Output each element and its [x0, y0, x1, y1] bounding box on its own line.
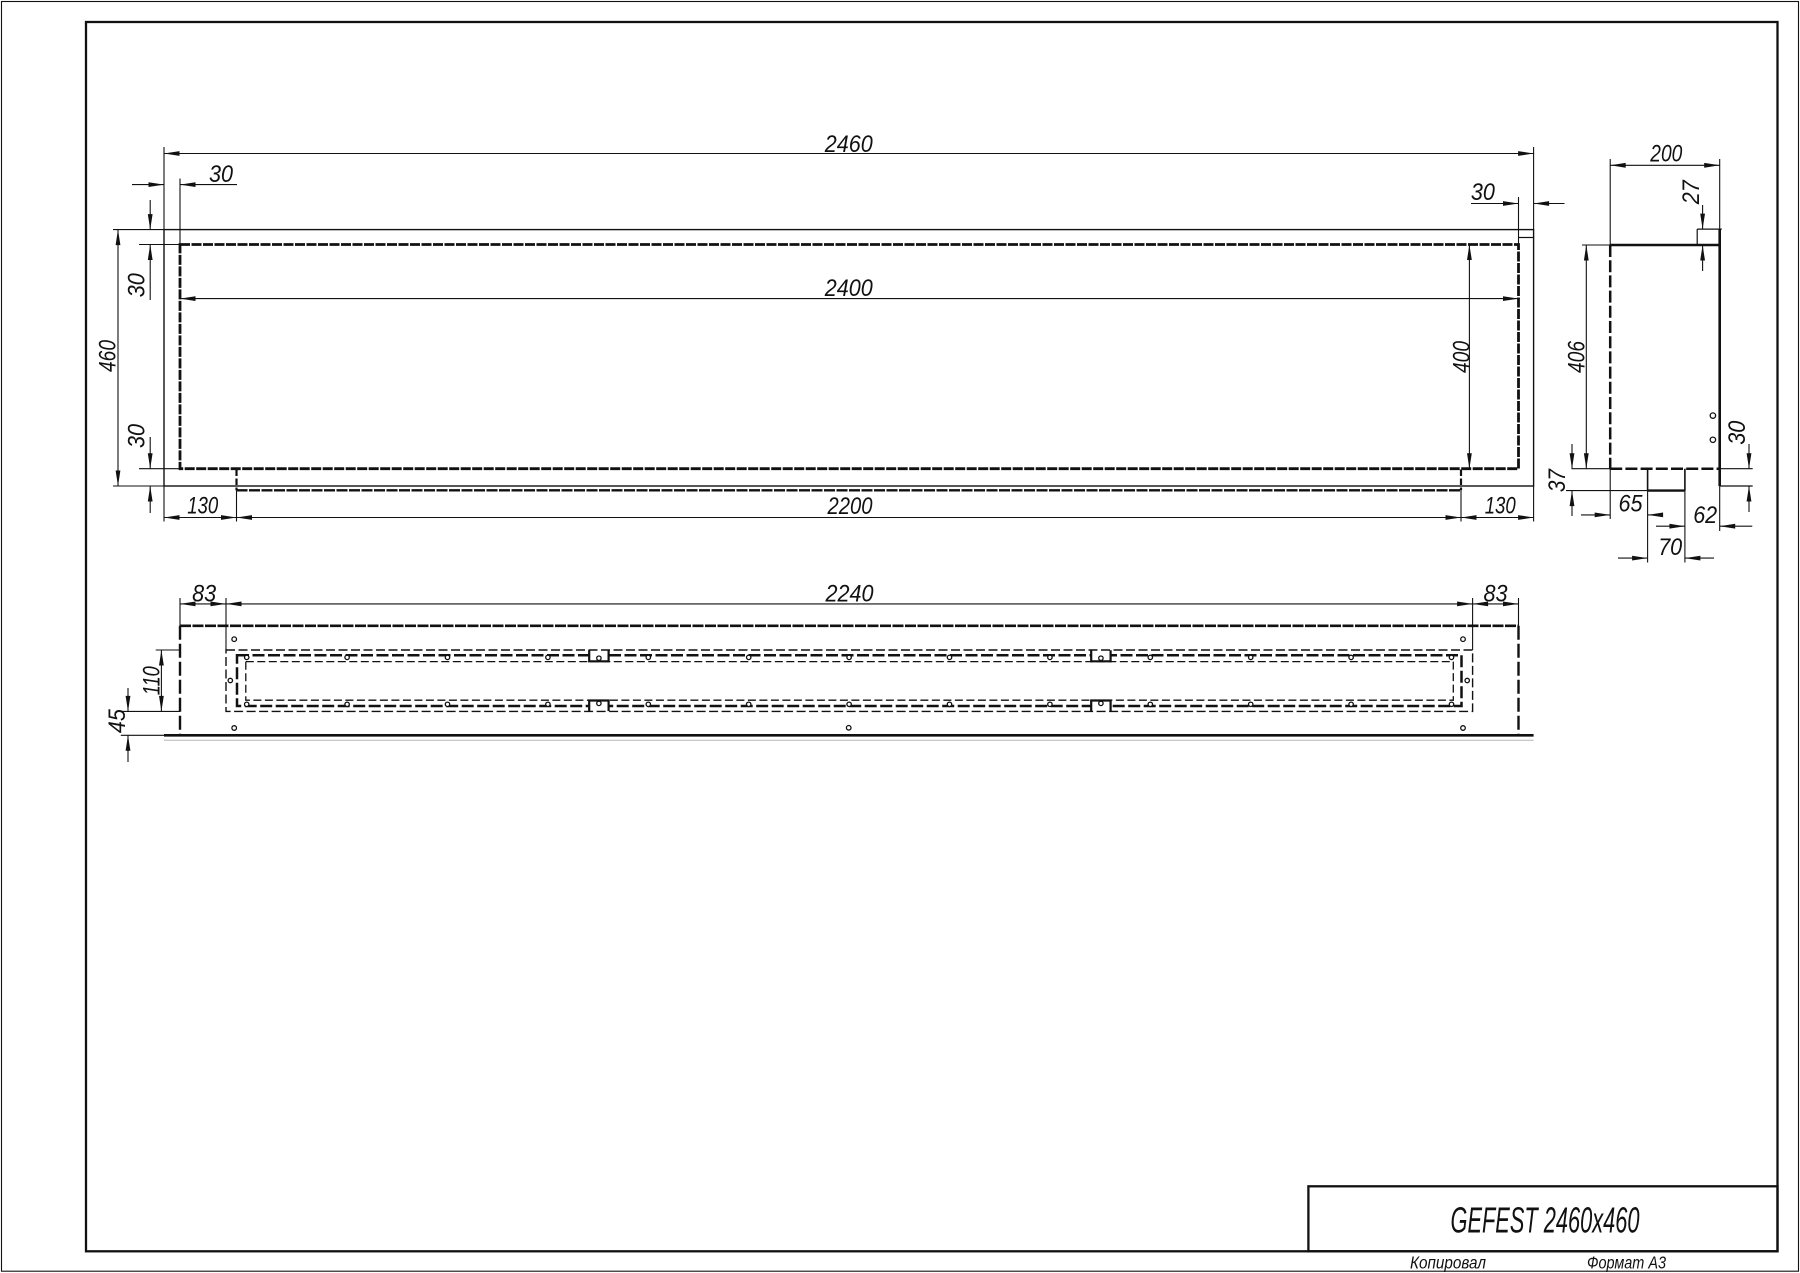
svg-text:110: 110	[139, 666, 166, 695]
svg-text:30: 30	[123, 273, 150, 297]
svg-text:Копировал: Копировал	[1410, 1253, 1486, 1273]
svg-text:30: 30	[123, 424, 150, 448]
svg-text:2200: 2200	[827, 493, 873, 520]
svg-text:70: 70	[1658, 534, 1682, 561]
svg-text:37: 37	[1544, 468, 1571, 492]
svg-text:2400: 2400	[824, 275, 873, 302]
svg-text:27: 27	[1678, 179, 1705, 205]
svg-text:Формат А3: Формат А3	[1587, 1253, 1666, 1273]
svg-text:83: 83	[1484, 580, 1508, 607]
svg-text:83: 83	[192, 580, 216, 607]
svg-text:130: 130	[1485, 492, 1516, 519]
svg-text:2460: 2460	[824, 131, 873, 158]
svg-text:406: 406	[1563, 341, 1590, 373]
svg-text:30: 30	[1724, 420, 1751, 444]
svg-text:GEFEST 2460x460: GEFEST 2460x460	[1451, 1200, 1640, 1241]
svg-text:460: 460	[95, 340, 122, 372]
svg-text:45: 45	[104, 709, 131, 733]
svg-text:400: 400	[1448, 341, 1475, 373]
svg-text:130: 130	[187, 492, 218, 519]
svg-text:200: 200	[1650, 141, 1683, 168]
svg-text:30: 30	[209, 161, 233, 188]
svg-text:62: 62	[1693, 502, 1717, 529]
svg-text:65: 65	[1619, 491, 1643, 518]
svg-text:30: 30	[1471, 179, 1495, 206]
svg-text:2240: 2240	[825, 580, 874, 607]
